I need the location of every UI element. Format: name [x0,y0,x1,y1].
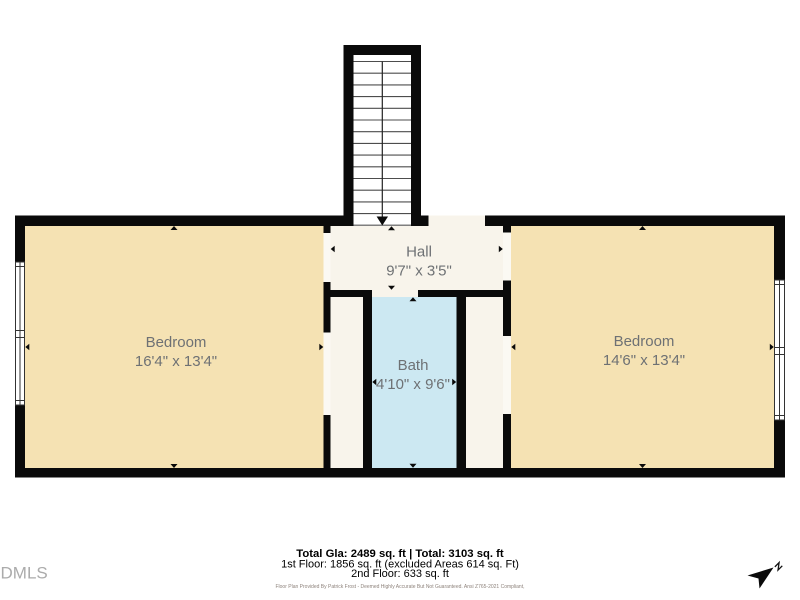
svg-text:Bath: Bath [398,357,429,374]
svg-text:9'7" x 3'5": 9'7" x 3'5" [386,263,452,280]
svg-text:DMLS: DMLS [1,564,48,583]
svg-text:Bedroom: Bedroom [146,334,207,351]
svg-text:Floor Plan Provided By Patrick: Floor Plan Provided By Patrick Frost - D… [275,584,524,590]
svg-text:4'10" x 9'6": 4'10" x 9'6" [376,376,450,393]
svg-text:Bedroom: Bedroom [614,333,675,350]
svg-text:14'6" x 13'4": 14'6" x 13'4" [603,352,685,369]
svg-text:16'4" x 13'4": 16'4" x 13'4" [135,353,217,370]
svg-text:2nd Floor: 633 sq. ft: 2nd Floor: 633 sq. ft [351,568,449,580]
svg-text:Hall: Hall [406,244,432,261]
